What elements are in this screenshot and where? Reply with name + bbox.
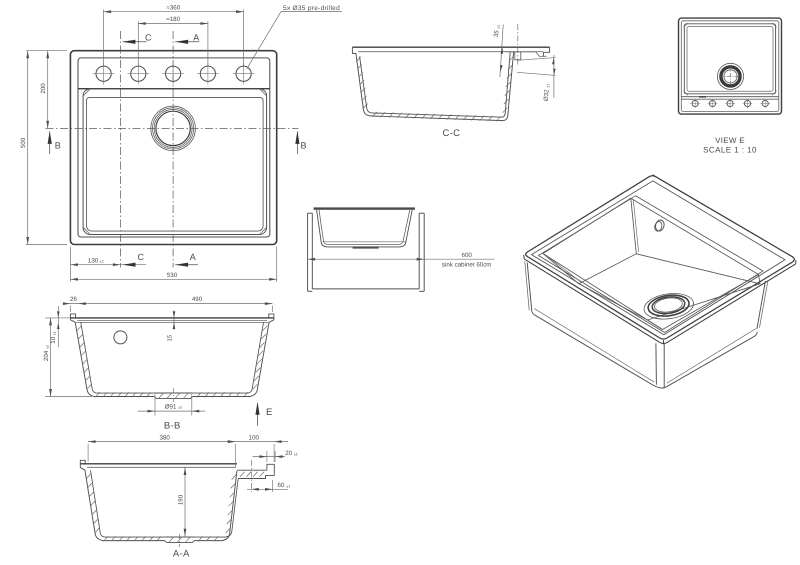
svg-text:10 ±1: 10 ±1 [50,331,57,344]
svg-text:204 ±2: 204 ±2 [43,345,50,361]
svg-text:C: C [138,252,145,262]
svg-text:60 ±1: 60 ±1 [278,482,291,489]
svg-text:100: 100 [249,434,260,441]
svg-text:380: 380 [160,434,171,441]
svg-text:A: A [190,252,196,262]
svg-text:B-B: B-B [164,420,181,431]
svg-text:130 ±1: 130 ±1 [88,257,104,264]
svg-text:A: A [193,33,199,43]
svg-text:530: 530 [167,272,178,279]
svg-text:B: B [301,140,307,150]
svg-text:A-A: A-A [173,548,190,559]
svg-text:SCALE 1 : 10: SCALE 1 : 10 [703,146,757,155]
svg-text:VIEW E: VIEW E [715,136,745,145]
svg-text:C: C [145,33,152,43]
svg-text:Ø32 ±1: Ø32 ±1 [543,83,551,101]
svg-text:490: 490 [192,296,203,303]
svg-text:E: E [266,407,272,418]
svg-text:≈360: ≈360 [166,4,180,11]
svg-text:C-C: C-C [443,128,461,139]
svg-text:sink cabinet 60cm: sink cabinet 60cm [442,262,492,269]
svg-text:5x Ø35 pre-drilled: 5x Ø35 pre-drilled [283,5,340,12]
svg-text:15: 15 [167,334,174,341]
svg-text:Ø91 ±2: Ø91 ±2 [165,403,182,410]
svg-text:200: 200 [40,83,47,94]
svg-text:500: 500 [20,137,27,148]
svg-text:190: 190 [177,494,184,505]
svg-text:B: B [55,140,61,150]
svg-text:26: 26 [70,296,77,303]
svg-text:20 ±1: 20 ±1 [285,450,298,457]
svg-text:=180: =180 [166,16,180,23]
svg-text:35 ±1: 35 ±1 [493,24,502,38]
svg-text:600: 600 [462,252,473,259]
